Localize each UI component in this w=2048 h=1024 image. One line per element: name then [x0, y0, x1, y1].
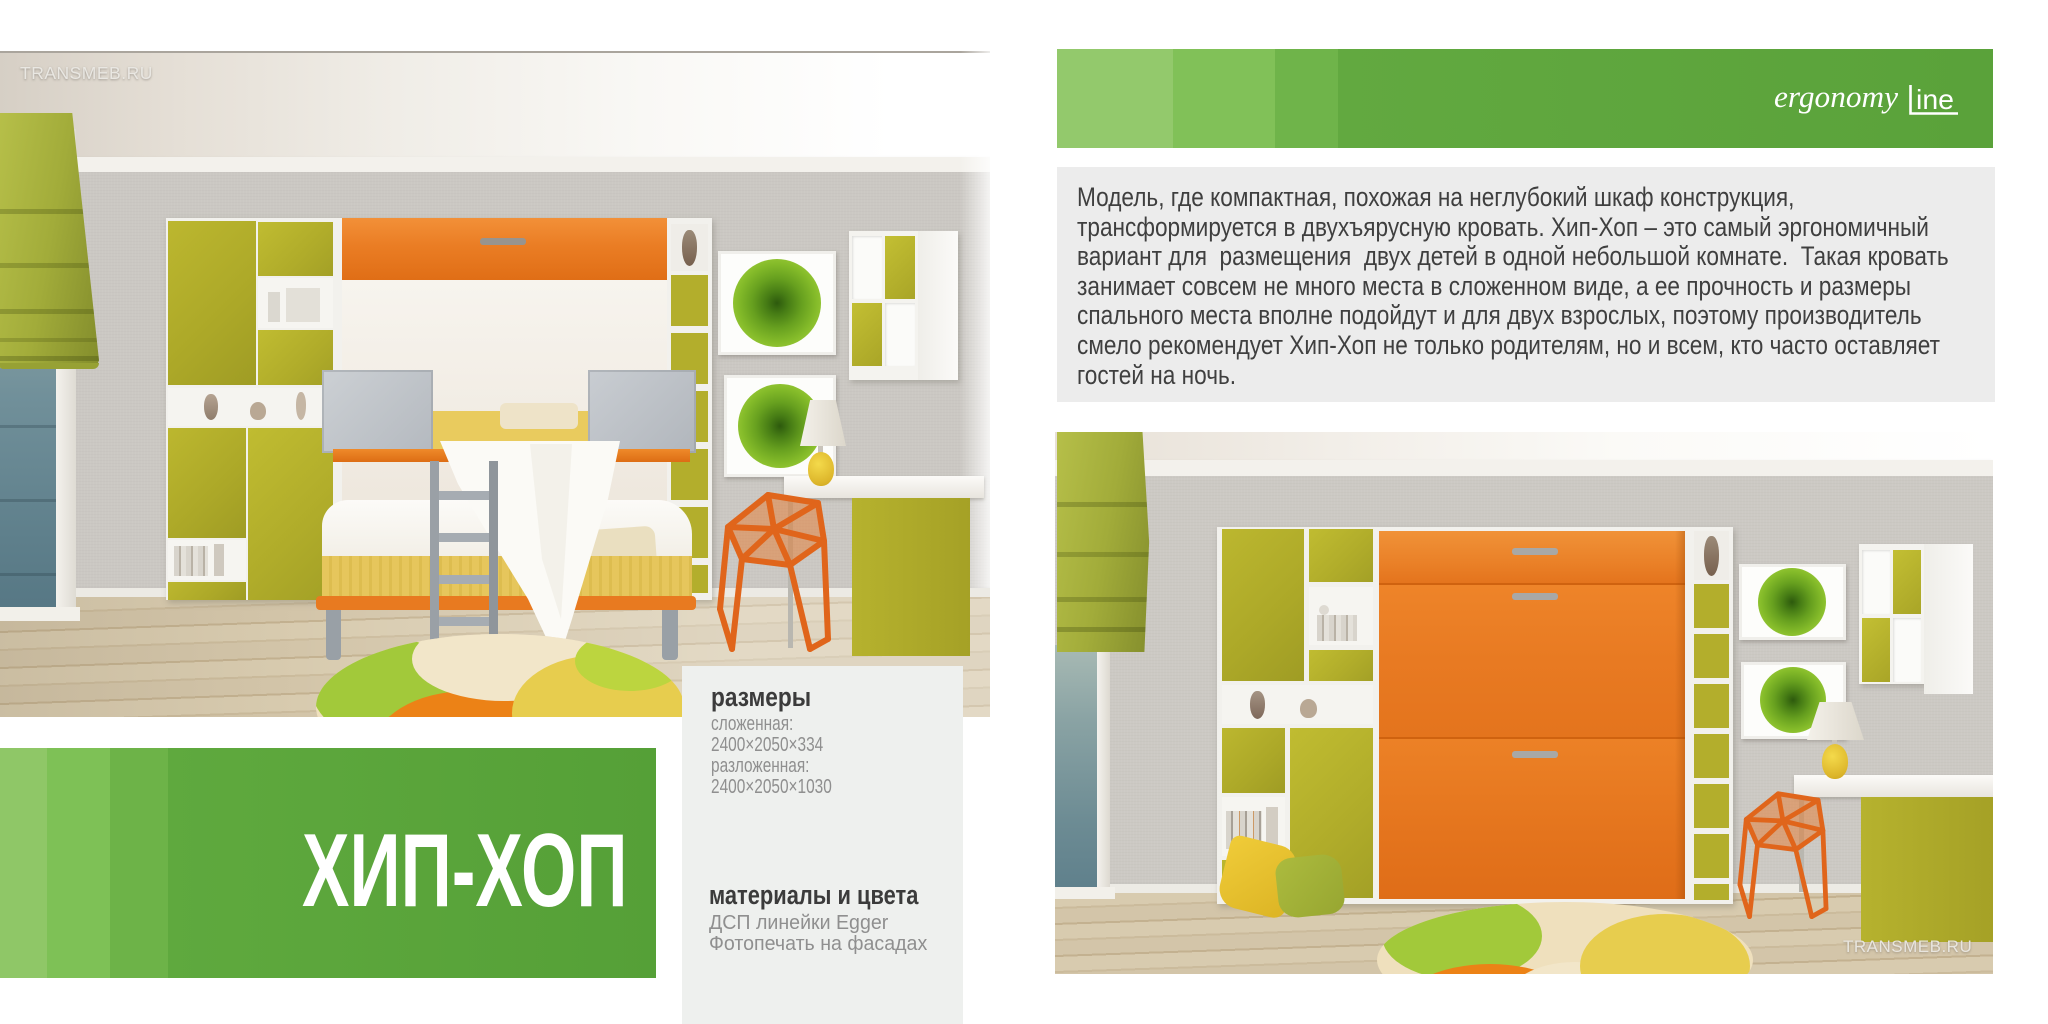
svg-text:ine: ine: [1916, 84, 1954, 115]
svg-text:ergonomy: ergonomy: [1774, 82, 1898, 114]
